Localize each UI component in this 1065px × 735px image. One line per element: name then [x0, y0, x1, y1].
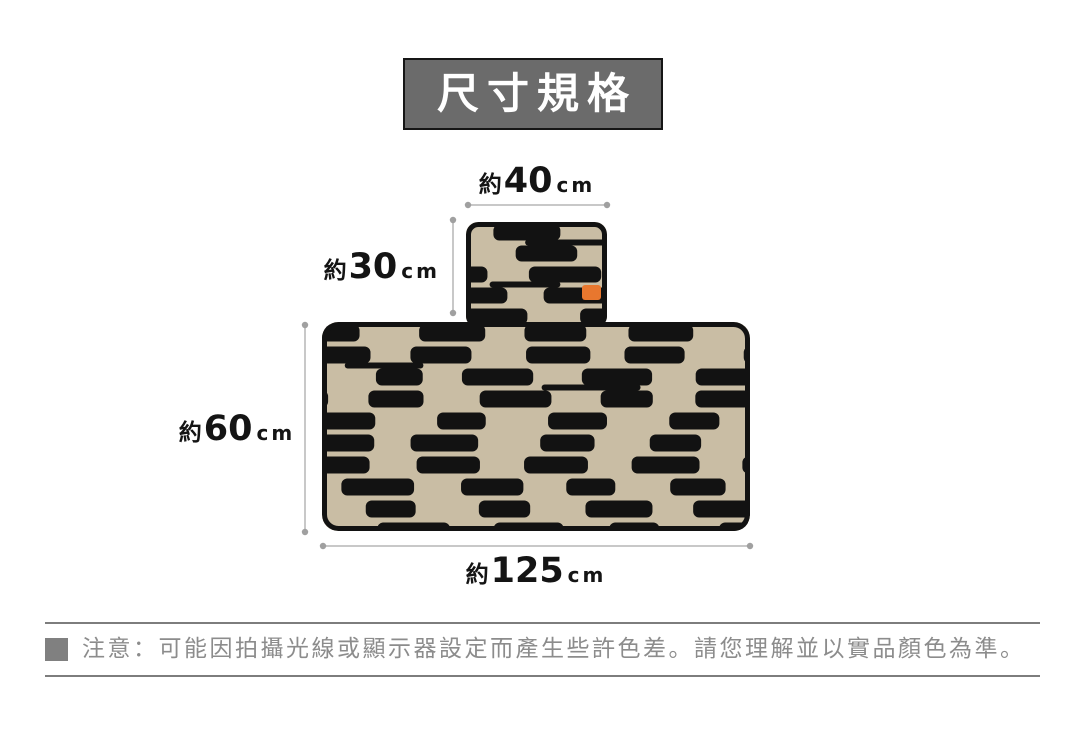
dimension-label-body-height: 約 60 cm [172, 412, 302, 447]
dimension-label-body-width: 約 125 cm [420, 554, 652, 589]
dimension-unit: cm [557, 175, 596, 195]
dimension-unit: cm [568, 565, 607, 585]
color-disclaimer-bar: 注意：可能因拍攝光線或顯示器設定而產生些許色差。請您理解並以實品顏色為準。 [45, 622, 1040, 677]
dimension-label-top-width: 約 40 cm [462, 164, 612, 199]
size-spec-page: 尺寸規格 約 40 cm 約 30 cm 約 60 cm 約 125 cm 注意… [0, 0, 1065, 735]
dimension-unit: cm [401, 261, 440, 281]
note-text: 注意：可能因拍攝光線或顯示器設定而產生些許色差。請您理解並以實品顏色為準。 [82, 638, 1026, 661]
blanket-body [247, 322, 822, 540]
approx-prefix: 約 [324, 260, 347, 283]
dimension-value: 30 [349, 250, 398, 285]
dimension-value: 125 [491, 554, 564, 589]
note-bullet-icon [45, 638, 68, 661]
dimension-value: 60 [204, 412, 253, 447]
approx-prefix: 約 [179, 422, 202, 445]
dimension-value: 40 [504, 164, 553, 199]
dimension-label-flap-height: 約 30 cm [310, 250, 440, 285]
approx-prefix: 約 [466, 564, 489, 587]
brand-tag-icon [582, 285, 601, 300]
dimension-unit: cm [257, 423, 296, 443]
approx-prefix: 約 [479, 174, 502, 197]
